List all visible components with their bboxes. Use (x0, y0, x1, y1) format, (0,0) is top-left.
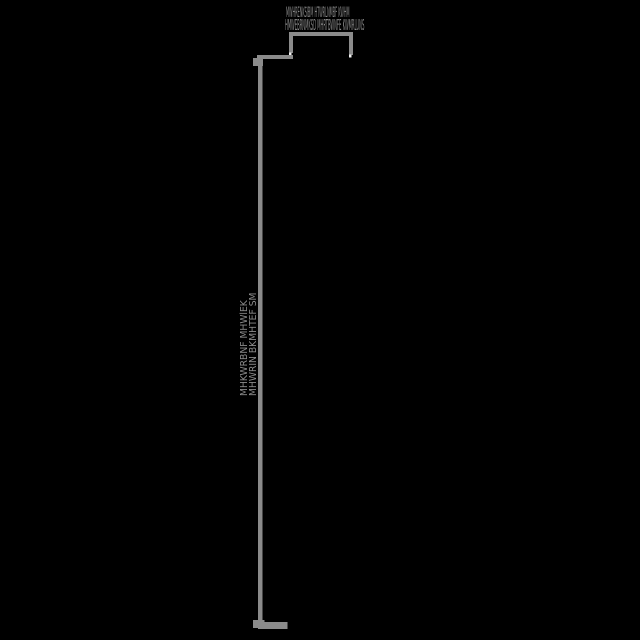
chart-title-line-2: HMWEBRNMKSD MHRTBWNFE KWMRLUNS (285, 19, 364, 31)
y-axis-label-line-inner: MHWRIN BKMHTEF SM (250, 299, 259, 396)
y-axis-label: MHKWRBNF MHWlEK MHWRIN BKMHTEF SM (241, 291, 258, 396)
bottom-baseline (258, 622, 288, 629)
figure-background (0, 0, 640, 640)
bracket-left-leg (289, 32, 293, 53)
axis-vertical-line (258, 55, 263, 626)
bracket-right-leg (349, 32, 353, 55)
endpoint-highlight-right (349, 55, 352, 58)
figure-canvas: MWHRENKSIBM HTWRLNMBF KWHM HMWEBRNMKSD M… (0, 0, 640, 640)
figure-shape-layer (0, 0, 640, 640)
tick-label-blob-top (253, 58, 263, 66)
